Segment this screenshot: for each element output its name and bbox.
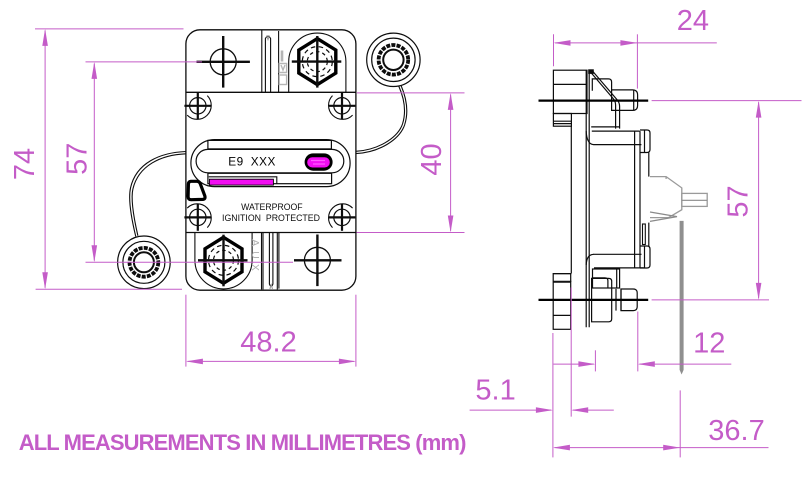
svg-text:24: 24 xyxy=(677,5,709,37)
svg-text:XXX: XXX xyxy=(251,154,276,168)
svg-text:57: 57 xyxy=(723,185,755,217)
svg-text:74: 74 xyxy=(9,148,41,180)
svg-text:40: 40 xyxy=(416,143,448,175)
svg-text:WATERPROOF: WATERPROOF xyxy=(241,202,303,212)
svg-text:36.7: 36.7 xyxy=(708,415,764,447)
svg-text:12: 12 xyxy=(693,328,725,360)
svg-text:57: 57 xyxy=(62,143,94,175)
svg-text:ALL MEASUREMENTS IN MILLIMETRE: ALL MEASUREMENTS IN MILLIMETRES (mm) xyxy=(19,430,467,455)
svg-text:48.2: 48.2 xyxy=(240,327,296,359)
svg-text:E9: E9 xyxy=(228,154,243,168)
svg-text:AUX: AUX xyxy=(249,239,261,276)
svg-text:IGNITION PROTECTED: IGNITION PROTECTED xyxy=(222,213,320,223)
svg-text:5.1: 5.1 xyxy=(475,375,515,407)
